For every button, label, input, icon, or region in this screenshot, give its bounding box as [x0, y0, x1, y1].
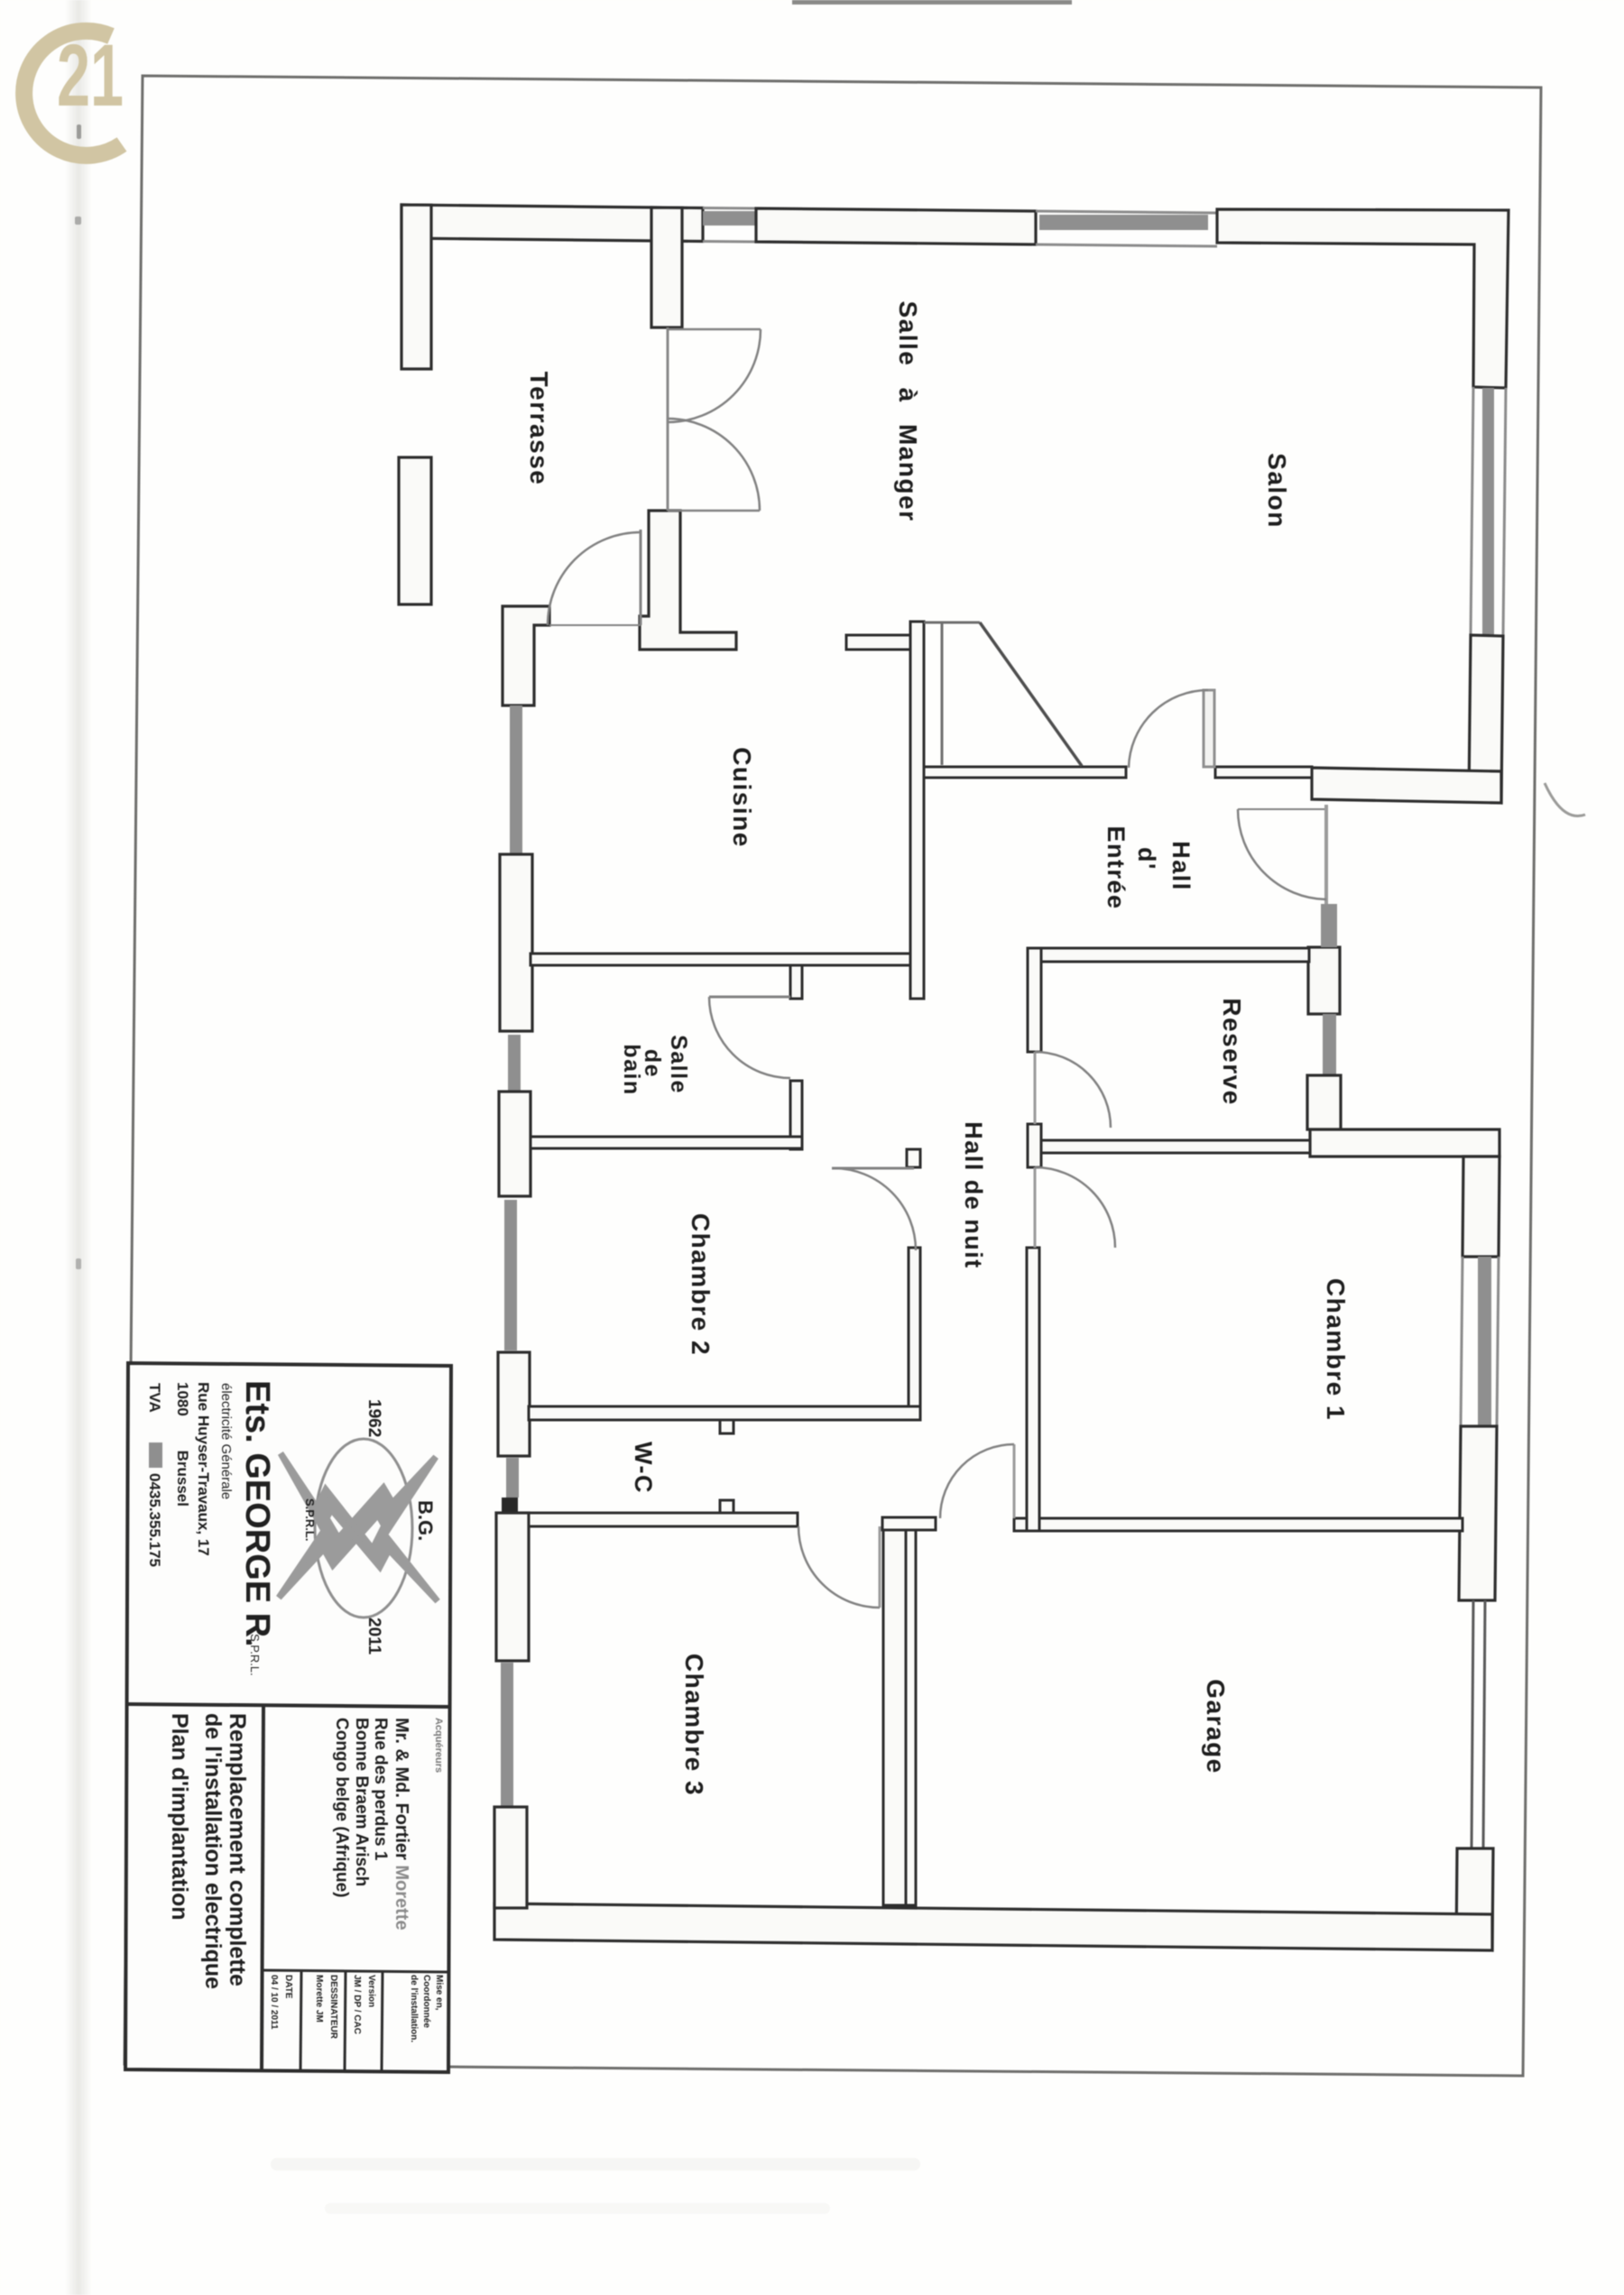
svg-text:électricité Générale: électricité Générale [218, 1383, 234, 1499]
svg-text:Coordonnée: Coordonnée [421, 1975, 431, 2028]
svg-text:DESSINATEUR: DESSINATEUR [328, 1975, 338, 2040]
svg-text:21: 21 [57, 26, 124, 124]
svg-text:d': d' [1133, 847, 1160, 871]
svg-text:Morette JM: Morette JM [314, 1975, 324, 2023]
svg-text:2011: 2011 [364, 1618, 383, 1655]
svg-text:B.G.: B.G. [414, 1500, 437, 1541]
svg-text:TVA: TVA [146, 1383, 163, 1413]
svg-text:Version: Version [366, 1975, 376, 2007]
svg-text:Remplacement complette: Remplacement complette [225, 1713, 250, 1986]
svg-text:DATE: DATE [283, 1975, 293, 1999]
svg-text:Salle: Salle [666, 1035, 691, 1094]
svg-text:Garage: Garage [1202, 1679, 1230, 1774]
svg-text:Reserve: Reserve [1218, 998, 1246, 1105]
svg-text:Hall: Hall [1167, 841, 1195, 891]
svg-text:S.P.R.L.: S.P.R.L. [248, 1634, 262, 1676]
svg-text:de l'installation.: de l'installation. [409, 1975, 419, 2042]
svg-text:JM / DP / CAC: JM / DP / CAC [352, 1975, 362, 2034]
svg-text:S.P.R.L.: S.P.R.L. [303, 1498, 317, 1541]
svg-text:Ets. GEORGE R.: Ets. GEORGE R. [238, 1380, 276, 1647]
svg-text:Mise en,: Mise en, [434, 1975, 444, 2011]
svg-text:Salle à Manger: Salle à Manger [894, 300, 922, 521]
svg-text:1962: 1962 [364, 1399, 383, 1437]
svg-text:0435.355.175: 0435.355.175 [146, 1473, 163, 1567]
svg-text:Salon: Salon [1263, 453, 1291, 529]
svg-text:Chambre 1: Chambre 1 [1322, 1278, 1350, 1421]
svg-text:Bonne Braem Arisch: Bonne Braem Arisch [352, 1718, 371, 1886]
svg-text:Mr. & Md. Fortier Morette: Mr. & Md. Fortier Morette [392, 1718, 411, 1931]
svg-text:Hall de nuit: Hall de nuit [960, 1121, 987, 1269]
svg-text:Acquéreurs: Acquéreurs [433, 1718, 444, 1773]
svg-text:Terrasse: Terrasse [525, 372, 553, 486]
svg-text:1080 Brussel: 1080 Brussel [174, 1382, 191, 1507]
svg-text:bain: bain [619, 1044, 644, 1095]
svg-text:W-C: W-C [630, 1442, 657, 1494]
svg-text:Congo belge (Afrique): Congo belge (Afrique) [332, 1718, 351, 1897]
svg-text:Plan d'implantation: Plan d'implantation [167, 1713, 192, 1921]
svg-text:Cuisine: Cuisine [728, 747, 756, 848]
svg-text:Rue des perdus 1: Rue des perdus 1 [371, 1718, 390, 1861]
svg-text:Chambre 2: Chambre 2 [687, 1213, 715, 1356]
svg-text:Chambre 3: Chambre 3 [680, 1654, 708, 1796]
svg-text:04 / 10 / 2011: 04 / 10 / 2011 [269, 1975, 279, 2030]
svg-text:Entrée: Entrée [1103, 825, 1130, 909]
svg-text:Rue Huyser-Travaux, 17: Rue Huyser-Travaux, 17 [195, 1382, 212, 1556]
svg-text:de l'installation electrique: de l'installation electrique [200, 1713, 226, 1989]
